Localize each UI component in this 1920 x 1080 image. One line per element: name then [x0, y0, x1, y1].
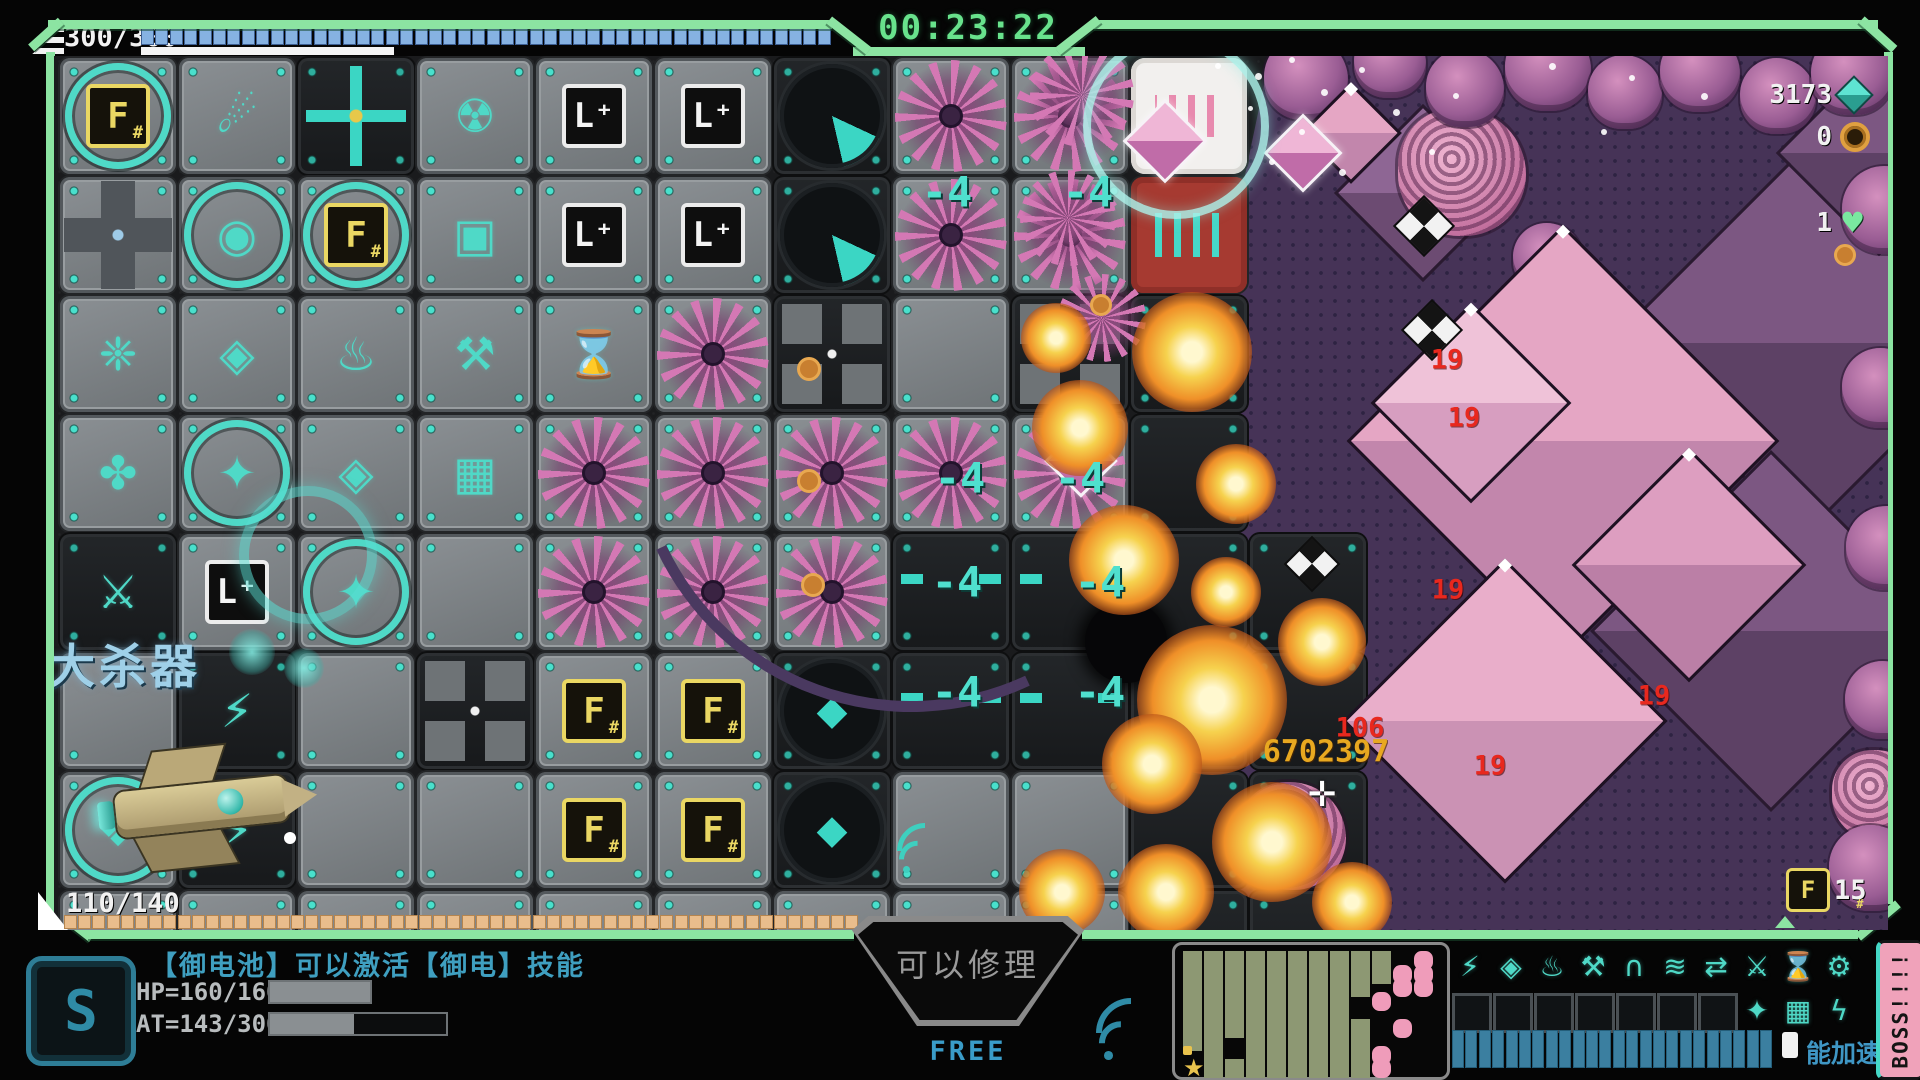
shield-bar-segment — [645, 27, 658, 45]
hull-bar-segment — [291, 915, 304, 929]
hull-bar-segment — [589, 915, 602, 929]
energy-bar-segment — [1693, 1030, 1705, 1068]
energy-bar-segment — [1573, 1030, 1585, 1068]
machine-flame-icon: ♨ — [298, 296, 414, 412]
explosion-effect — [1118, 844, 1214, 930]
minimap-base-cell — [1246, 1059, 1265, 1078]
signal-icon — [897, 833, 943, 879]
shield-bar-segment — [631, 27, 644, 45]
damage-number: -4 — [932, 558, 983, 607]
hull-bar-segment — [220, 915, 233, 929]
hull-bar-segment — [604, 915, 617, 929]
hull-bar-segment — [717, 915, 730, 929]
enemy-crab[interactable] — [1426, 56, 1504, 127]
shield-bar-segment — [199, 27, 212, 45]
hud-frame-segment — [1094, 20, 1878, 29]
game-screen: 300/300 00:23:22 F#☄☢L⁺L⁺◉F#▣L⁺L⁺❈◈♨⚒⌛✤✦… — [0, 0, 1920, 1080]
engine-glow — [229, 629, 275, 675]
enemy-flower — [538, 536, 650, 648]
energy-bar-segment — [1532, 1030, 1544, 1068]
shield-bar-segment — [357, 27, 370, 45]
damage-number: 19 — [1474, 751, 1507, 782]
hull-bar-segment — [192, 915, 205, 929]
energy-bar-segment — [1707, 1030, 1719, 1068]
player-core-icon[interactable]: S — [26, 956, 136, 1066]
skill-slot-empty[interactable] — [1698, 993, 1738, 1033]
hull-bar-segment — [419, 915, 432, 929]
shield-bar-segment — [184, 27, 197, 45]
skill-star[interactable]: ✦ — [1739, 992, 1775, 1028]
l-module-icon: L⁺ — [681, 84, 745, 148]
machine-repair-icon: ⚒ — [417, 296, 533, 412]
hull-bar-segment — [632, 915, 645, 929]
pickup-orb — [1834, 244, 1856, 266]
hull-bar-segment — [305, 915, 318, 929]
coin-resource: 0 — [1740, 122, 1870, 152]
explosion-effect — [1102, 714, 1202, 814]
sparkle — [1339, 169, 1346, 176]
tile-machine-f-core[interactable]: F# — [298, 177, 414, 293]
hull-bar-segment — [92, 915, 105, 929]
machine-cube-icon: ▣ — [417, 177, 533, 293]
shield-bar-segment — [760, 27, 773, 45]
machine-gear-icon: ◉ — [179, 177, 295, 293]
teal-gem-icon — [1834, 75, 1874, 115]
shield-bar-segment — [674, 27, 687, 45]
minimap-base-cell — [1225, 1059, 1244, 1078]
hull-bar-segment — [547, 915, 560, 929]
sparkle — [1299, 129, 1305, 135]
minimap-base-cell — [1372, 965, 1391, 984]
hull-bar-segment — [121, 915, 134, 929]
hull-bar-segment — [447, 915, 460, 929]
signal-icon — [1096, 1010, 1154, 1068]
damage-number: -4 — [1075, 558, 1126, 607]
tile-machine-matrix[interactable]: ▦ — [417, 415, 533, 531]
damage-number: 19 — [1432, 575, 1465, 606]
f-resource-counter: F# 15 — [1786, 868, 1867, 912]
hud-frame-segment — [1859, 16, 1898, 52]
sparkle — [1429, 149, 1435, 155]
hull-bar-segment — [490, 915, 503, 929]
hud-frame-segment — [827, 17, 872, 55]
tile-pipe-junction[interactable] — [60, 177, 176, 293]
skill-dome[interactable]: ∩ — [1616, 948, 1652, 984]
shield-subbar — [141, 47, 394, 55]
shield-bar-segment — [328, 27, 341, 45]
shield-bar-segment — [530, 27, 543, 45]
hull-bar-segment — [348, 915, 361, 929]
tile-machine-radiation[interactable]: ☢ — [417, 58, 533, 174]
sparkle — [1629, 75, 1635, 81]
shield-bar-segment — [573, 27, 586, 45]
damage-number: -4 — [935, 454, 986, 503]
energy-bar-segment — [1626, 1030, 1638, 1068]
hull-bar-segment — [391, 915, 404, 929]
hull-bar-segment — [533, 915, 546, 929]
minimap-enemy-cell — [1414, 978, 1433, 997]
skill-prism[interactable]: ◈ — [1493, 948, 1529, 984]
energy-bar-segment — [1479, 1030, 1491, 1068]
shield-bar-segment — [314, 27, 327, 45]
repair-label: 可以修理 — [896, 940, 1040, 1020]
tile-machine-l-module[interactable]: L⁺ — [536, 177, 652, 293]
minimap-base-cell — [1267, 1059, 1286, 1078]
core-glyph: S — [64, 979, 98, 1044]
hull-bar-segment — [433, 915, 446, 929]
tile-machine-flame[interactable]: ♨ — [298, 296, 414, 412]
skill-slot-empty[interactable] — [1534, 993, 1574, 1033]
sparkle — [1289, 57, 1295, 63]
skill-slot-empty[interactable] — [1657, 993, 1697, 1033]
sparkle — [1359, 67, 1365, 73]
hull-bar-segment — [277, 915, 290, 929]
energy-bar-segment — [1492, 1030, 1504, 1068]
minimap-enemy-cell — [1372, 992, 1391, 1011]
f-module-icon: F# — [681, 798, 745, 862]
enemy-crab[interactable] — [1588, 56, 1662, 129]
hud-frame-segment — [48, 20, 832, 29]
shield-bar-segment — [227, 27, 240, 45]
hull-bar-segment — [689, 915, 702, 929]
shield-bar-segment — [746, 27, 759, 45]
tile-machine-l-module[interactable]: L⁺ — [536, 58, 652, 174]
tile-machine-repair[interactable]: ⚒ — [417, 296, 533, 412]
mission-timer: 00:23:22 — [878, 8, 1058, 48]
skill-signal[interactable]: ≋ — [1657, 948, 1693, 984]
hull-bar-segment — [575, 915, 588, 929]
shield-bar-segment — [386, 27, 399, 45]
energy-bar-segment — [1599, 1030, 1611, 1068]
shield-bar-segment — [501, 27, 514, 45]
minimap-enemy-cell — [1393, 978, 1412, 997]
f-module-icon: F# — [562, 679, 626, 743]
energy-bar-segment — [1559, 1030, 1571, 1068]
shield-bar-segment — [458, 27, 471, 45]
shield-bar-segment — [415, 27, 428, 45]
shield-bar-segment — [703, 27, 716, 45]
minimap-base-cell — [1351, 978, 1370, 997]
shield-bar-segment — [443, 27, 456, 45]
at-label: AT=143/300 — [136, 1010, 281, 1038]
hull-bar-segment — [178, 915, 191, 929]
hull-bar-segment — [731, 915, 744, 929]
energy-bar-segment — [1747, 1030, 1759, 1068]
shield-bar-segment — [559, 27, 572, 45]
minimap[interactable]: ★ — [1172, 942, 1450, 1080]
crystal-resource: 3173 — [1740, 80, 1868, 110]
machine-radiation-icon: ☢ — [417, 58, 533, 174]
energy-bar-segment — [1760, 1030, 1772, 1068]
explosion-effect — [1132, 292, 1252, 412]
f-module-icon: F# — [681, 679, 745, 743]
shield-bar-segment — [688, 27, 701, 45]
sparkle — [1321, 89, 1328, 96]
damage-number: -4 — [1055, 454, 1106, 503]
skill-slash[interactable]: ⚔ — [1739, 948, 1775, 984]
shield-bar-segment — [472, 27, 485, 45]
tile-machine-cube[interactable]: ▣ — [417, 177, 533, 293]
shield-bar-segment — [616, 27, 629, 45]
hull-bar-segment — [320, 915, 333, 929]
shield-bar-segment — [371, 27, 384, 45]
hull-bar-segment — [149, 915, 162, 929]
machine-prism-icon: ◈ — [179, 296, 295, 412]
hull-bar-segment — [817, 915, 830, 929]
f-module-icon: F# — [86, 84, 150, 148]
hull-bar-segment — [831, 915, 844, 929]
skill-bolt[interactable]: ϟ — [1821, 992, 1857, 1028]
floating-text: 获得大杀器 — [54, 628, 201, 697]
skill-flame[interactable]: ♨ — [1534, 948, 1570, 984]
shield-bar-segment — [602, 27, 615, 45]
boss-badge: BOSS!!!! — [1876, 940, 1920, 1080]
explosion-effect — [1191, 557, 1261, 627]
sparkle — [1601, 129, 1607, 135]
tile-machine-gear[interactable]: ◉ — [179, 177, 295, 293]
hull-bar-segment — [618, 915, 631, 929]
shield-bar-segment — [155, 27, 168, 45]
explosion-effect — [1196, 444, 1276, 524]
skill-slot-empty[interactable] — [1616, 993, 1656, 1033]
hull-bar-segment — [660, 915, 673, 929]
shield-bar-segment — [587, 27, 600, 45]
shield-bar-segment — [343, 27, 356, 45]
hull-bar-segment — [376, 915, 389, 929]
tile-floor-plate[interactable] — [417, 772, 533, 888]
tile-machine-f-module[interactable]: F# — [536, 772, 652, 888]
tile-conveyor-cross[interactable] — [417, 653, 533, 769]
hull-bar-segment — [561, 915, 574, 929]
engine-glow — [284, 648, 324, 688]
energy-bar-segment — [1613, 1030, 1625, 1068]
shield-bar-segment — [285, 27, 298, 45]
green-heart-icon: ♥ — [1840, 212, 1865, 234]
shield-bar-segment — [659, 27, 672, 45]
hull-bar-segment — [802, 915, 815, 929]
hull-bar-segment — [675, 915, 688, 929]
coin-resource-value: 0 — [1740, 122, 1832, 152]
shield-bar-segment — [400, 27, 413, 45]
hull-bar-segment — [64, 915, 77, 929]
machine-comet-icon: ☄ — [179, 58, 295, 174]
hull-bar-segment — [788, 915, 801, 929]
hull-bar-segment — [518, 915, 531, 929]
player-ship[interactable] — [54, 726, 345, 895]
tile-machine-f-module[interactable]: F# — [536, 653, 652, 769]
minimap-enemy-cell — [1393, 1019, 1412, 1038]
hull-bar-segment — [334, 915, 347, 929]
hp-label: HP=160/160 — [136, 978, 281, 1006]
hull-bar-segment — [746, 915, 759, 929]
hull-bar-segment — [78, 915, 91, 929]
minimap-player-marker: ★ — [1183, 1059, 1202, 1078]
shield-bar-segment — [242, 27, 255, 45]
shield-bar-segment — [213, 27, 226, 45]
lives-value: 1 — [1740, 208, 1832, 238]
sparkle — [1255, 73, 1262, 80]
tile-machine-l-module[interactable]: L⁺ — [655, 58, 771, 174]
energy-bar-segment — [1546, 1030, 1558, 1068]
shield-bar-segment — [256, 27, 269, 45]
shield-bar-segment — [170, 27, 183, 45]
skill-matrix[interactable]: ▦ — [1780, 992, 1816, 1028]
hull-bar-segment — [249, 915, 262, 929]
hud-frame-segment — [1082, 930, 1858, 939]
damage-number: -4 — [932, 668, 983, 717]
at-bar — [268, 1012, 448, 1036]
hull-bar-segment — [646, 915, 659, 929]
ship-engine — [97, 801, 116, 831]
tile-machine-comet[interactable]: ☄ — [179, 58, 295, 174]
shield-bar-segment — [731, 27, 744, 45]
shield-bar-segment — [717, 27, 730, 45]
energy-bar-segment — [1680, 1030, 1692, 1068]
damage-number: -4 — [1063, 168, 1114, 217]
skill-slot-empty[interactable] — [1575, 993, 1615, 1033]
sparkle — [1393, 109, 1400, 116]
minimap-base-cell — [1330, 1059, 1349, 1078]
machine-claw-icon: ❈ — [60, 296, 176, 412]
tile-machine-f-module[interactable]: F# — [655, 653, 771, 769]
minimap-enemy-cell — [1372, 1059, 1391, 1078]
energy-icon — [1782, 1032, 1798, 1058]
hull-bar-segment — [774, 915, 787, 929]
explosion-effect — [1278, 598, 1366, 686]
hull-bar-segment — [760, 915, 773, 929]
skill-warp[interactable]: ⇄ — [1698, 948, 1734, 984]
shield-bar-segment — [487, 27, 500, 45]
sparkle — [1701, 93, 1708, 100]
tile-floor-plate[interactable] — [417, 534, 533, 650]
tile-machine-prism[interactable]: ◈ — [179, 296, 295, 412]
tile-enemy-flower[interactable] — [536, 534, 652, 650]
skill-slot-empty[interactable] — [1493, 993, 1533, 1033]
energy-bar-segment — [1666, 1030, 1678, 1068]
energy-boost-label: 能加速 — [1806, 1034, 1881, 1070]
hull-bar-segment — [163, 915, 176, 929]
energy-bar-segment — [1519, 1030, 1531, 1068]
sparkle — [1549, 63, 1556, 70]
hull-bar-segment — [462, 915, 475, 929]
hull-bar-segment — [263, 915, 276, 929]
shield-bar-segment — [818, 27, 831, 45]
lives: 1♥ — [1740, 208, 1865, 238]
diamond-dial-icon: ◆ — [780, 778, 884, 882]
hp-bar — [268, 980, 372, 1004]
damage-number: 19 — [1431, 345, 1464, 376]
machine-shield-pods-icon: ✤ — [60, 415, 176, 531]
skill-repair[interactable]: ⚒ — [1575, 948, 1611, 984]
hull-bar-segment — [206, 915, 219, 929]
shield-bar-segment — [789, 27, 802, 45]
energy-bar-segment — [1720, 1030, 1732, 1068]
minimap-base-cell — [1204, 1059, 1223, 1078]
hull-bar-segment — [107, 915, 120, 929]
energy-bar-segment — [1465, 1030, 1477, 1068]
tile-machine-f-module[interactable]: F# — [655, 772, 771, 888]
skill-wrench[interactable]: ⚙ — [1821, 948, 1857, 984]
shield-bar-segment — [775, 27, 788, 45]
hull-bar-segment — [405, 915, 418, 929]
l-module-icon: L⁺ — [562, 203, 626, 267]
minimap-base-cell — [1225, 1019, 1244, 1038]
minimap-base-cell — [1351, 1059, 1370, 1078]
skill-scan[interactable]: ⌛ — [1780, 948, 1816, 984]
energy-bar-segment — [1733, 1030, 1745, 1068]
sparkle — [1269, 159, 1275, 165]
shield-bar-segment — [429, 27, 442, 45]
shield-bar-segment — [271, 27, 284, 45]
hull-bar-segment — [135, 915, 148, 929]
l-module-icon: L⁺ — [562, 84, 626, 148]
hud-frame-segment — [88, 930, 854, 939]
sparkle — [1453, 93, 1459, 99]
hull-bar-segment — [504, 915, 517, 929]
energy-bar-segment — [1586, 1030, 1598, 1068]
sparkle — [1215, 63, 1221, 69]
f-module-icon: F# — [562, 798, 626, 862]
minimap-base-cell — [1288, 1059, 1307, 1078]
f-module-icon: F# — [324, 203, 388, 267]
skill-dash[interactable]: ⚡ — [1452, 948, 1488, 984]
tile-machine-diamond-dial[interactable]: ◆ — [774, 772, 890, 888]
ship-hull — [114, 775, 290, 839]
damage-number: -4 — [922, 168, 973, 217]
shield-bar-segment — [299, 27, 312, 45]
shield-bar-segment — [544, 27, 557, 45]
shield-bar-segment — [515, 27, 528, 45]
repair-cost-label: FREE — [929, 1036, 1006, 1067]
energy-bar-segment — [1653, 1030, 1665, 1068]
ship-nose — [281, 776, 319, 817]
tile-machine-claw[interactable]: ❈ — [60, 296, 176, 412]
hull-bar-segment — [703, 915, 716, 929]
hull-bar-segment — [362, 915, 375, 929]
orange-coin-icon — [1840, 122, 1870, 152]
battlefield: F#☄☢L⁺L⁺◉F#▣L⁺L⁺❈◈♨⚒⌛✤✦◈▦⚔L⁺✦⚡F#F#◆❖⚡F#F… — [54, 56, 1888, 930]
repair-button[interactable]: 可以修理 — [852, 916, 1084, 1026]
tile-conveyor-cross-teal[interactable] — [298, 58, 414, 174]
shield-bar-segment — [803, 27, 816, 45]
machine-matrix-icon: ▦ — [417, 415, 533, 531]
shield-bar-segment — [141, 27, 154, 45]
sparkle — [1248, 106, 1253, 111]
energy-bar-segment — [1640, 1030, 1652, 1068]
boss-label: BOSS!!!! — [1889, 951, 1913, 1068]
aim-cursor: ✛ — [1308, 763, 1336, 817]
crystal-resource-value: 3173 — [1740, 80, 1832, 110]
tile-machine-shield-pods[interactable]: ✤ — [60, 415, 176, 531]
hull-bar-segment — [234, 915, 247, 929]
energy-bar-segment — [1506, 1030, 1518, 1068]
f-module-icon: F# — [1786, 868, 1830, 912]
hull-bar-segment — [476, 915, 489, 929]
damage-number: 19 — [1448, 403, 1481, 434]
target-ring — [239, 486, 377, 624]
eject-icon[interactable] — [1768, 916, 1802, 942]
minimap-base-cell — [1309, 1059, 1328, 1078]
skill-slot-empty[interactable] — [1452, 993, 1492, 1033]
energy-bar-segment — [1452, 1030, 1464, 1068]
damage-number: -4 — [1075, 668, 1126, 717]
damage-number: 19 — [1638, 681, 1671, 712]
tile-machine-f-core[interactable]: F# — [60, 58, 176, 174]
explosion-effect — [1021, 303, 1091, 373]
